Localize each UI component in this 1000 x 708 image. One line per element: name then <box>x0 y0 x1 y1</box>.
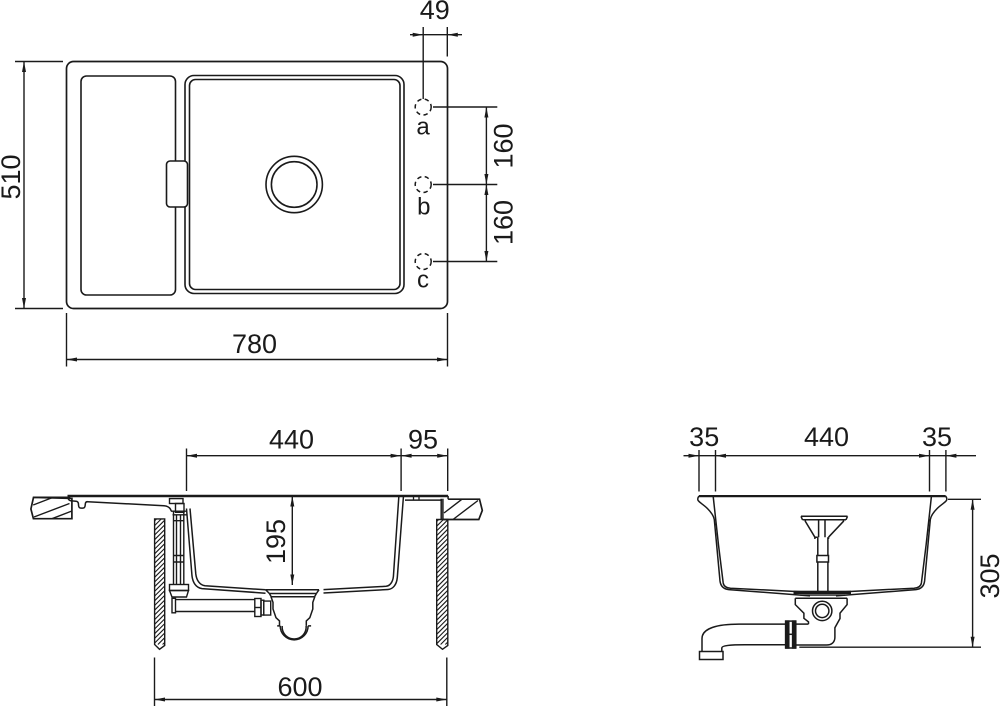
svg-text:160: 160 <box>489 200 519 245</box>
svg-text:35: 35 <box>689 422 719 452</box>
svg-text:510: 510 <box>0 154 26 199</box>
svg-text:440: 440 <box>269 425 314 455</box>
svg-text:160: 160 <box>489 123 519 168</box>
svg-text:49: 49 <box>420 0 450 25</box>
svg-text:780: 780 <box>232 329 277 359</box>
svg-text:b: b <box>417 194 430 221</box>
svg-text:c: c <box>417 267 429 294</box>
svg-text:95: 95 <box>408 425 438 455</box>
svg-text:35: 35 <box>922 422 952 452</box>
svg-text:a: a <box>416 114 430 141</box>
svg-text:600: 600 <box>277 672 322 702</box>
svg-text:305: 305 <box>975 553 1000 598</box>
svg-text:440: 440 <box>804 422 849 452</box>
svg-text:195: 195 <box>261 519 291 564</box>
